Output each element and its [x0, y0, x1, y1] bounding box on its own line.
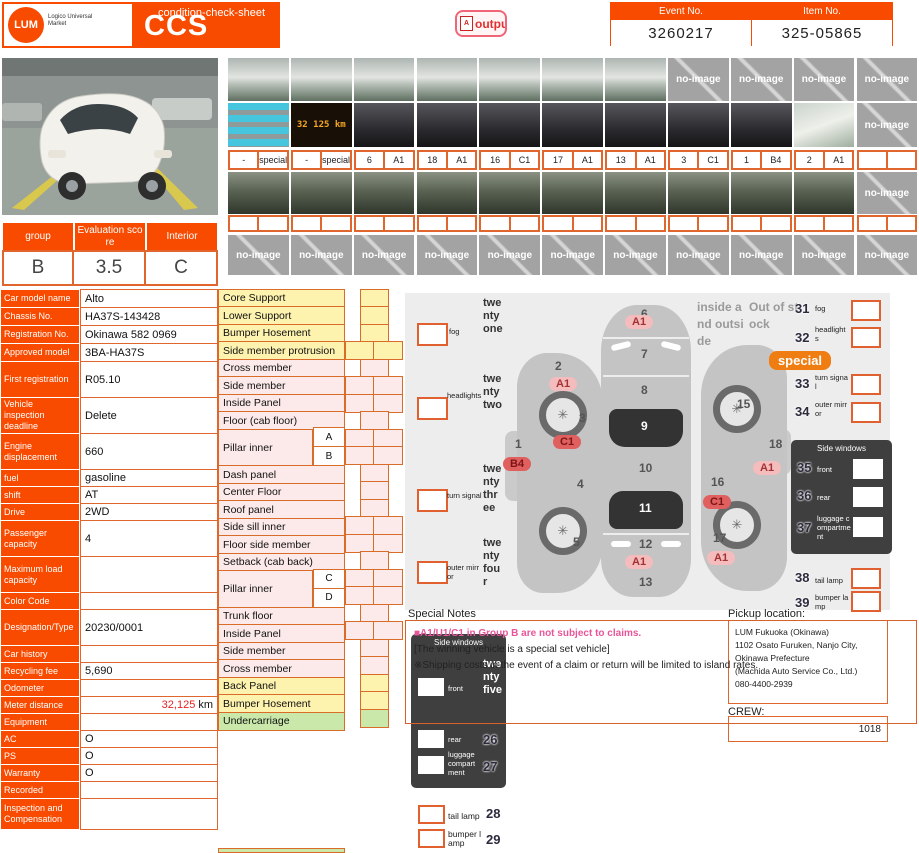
part-checkbox[interactable]	[360, 656, 389, 675]
photo-thumb[interactable]	[542, 172, 603, 214]
details-row-value: Delete	[80, 397, 218, 434]
photo-tag-pair	[479, 215, 540, 232]
parts-row: Floor side member	[218, 535, 345, 554]
part-checkbox-right[interactable]	[373, 516, 403, 535]
part-checkbox[interactable]	[360, 359, 389, 378]
panel-line	[603, 375, 689, 377]
part-checkbox[interactable]	[360, 481, 389, 500]
photo-tag-cell	[762, 215, 791, 232]
part-checkbox[interactable]	[360, 674, 389, 693]
photo-thumb[interactable]	[417, 58, 478, 101]
no-image-placeholder: no-image	[291, 235, 352, 275]
part-checkbox-right[interactable]	[373, 429, 403, 448]
photo-tag-pair: 1B4	[731, 150, 792, 170]
part-checkbox-right[interactable]	[373, 446, 403, 465]
parts-row: Side member	[218, 642, 345, 661]
parts-row: Side member protrusion	[218, 341, 345, 360]
luggage-window-label: luggage compartment	[817, 514, 851, 541]
headlights-label-right: headlights	[815, 325, 849, 343]
photo-tag-cell	[322, 215, 351, 232]
photo-tag-pair: 2A1	[794, 150, 855, 170]
photo-tag-cell	[857, 215, 888, 232]
details-row: Inspection and Compensation	[0, 798, 218, 830]
parts-sub-cell: D	[313, 588, 345, 609]
strip-row	[345, 306, 405, 325]
part-checkbox-left[interactable]	[345, 621, 375, 640]
parts-sub-cell: C	[313, 569, 345, 590]
details-row-value: 32,125km	[80, 696, 218, 714]
photo-tag-cell: A1	[637, 150, 666, 170]
part-checkbox[interactable]	[360, 691, 389, 710]
part-checkbox[interactable]	[360, 289, 389, 308]
details-row: Meter distance32,125km	[0, 696, 218, 714]
details-row-value: 660	[80, 433, 218, 470]
item-31-number: 31	[795, 301, 809, 316]
photo-thumb[interactable]	[228, 172, 289, 214]
zone-5: 5	[573, 535, 580, 549]
strip-row	[345, 394, 405, 413]
parts-row: Cross member	[218, 359, 345, 378]
item-35-number: 35	[797, 460, 811, 475]
details-row-value: HA37S-143428	[80, 307, 218, 326]
part-checkbox[interactable]	[360, 709, 389, 728]
damage-badge-a1: A1	[549, 377, 577, 391]
part-checkbox-left[interactable]	[345, 586, 375, 605]
bumper-lamp-checkbox-right[interactable]	[851, 591, 881, 612]
parts-row: Core Support	[218, 289, 345, 308]
details-row-value	[80, 592, 218, 610]
photo-tag-cell: C1	[511, 150, 540, 170]
item-27-number: 27	[483, 759, 497, 774]
details-row-value: 4	[80, 520, 218, 557]
photo-thumb[interactable]	[228, 103, 289, 147]
details-row: Car model nameAlto	[0, 289, 218, 308]
tail-lamp-label-left: tail lamp	[448, 812, 488, 821]
no-image-placeholder: no-image	[417, 235, 478, 275]
part-checkbox-left[interactable]	[345, 516, 375, 535]
parts-row: Side sill inner	[218, 518, 345, 537]
details-row-label: Recycling fee	[0, 662, 80, 680]
photo-tag-cell	[385, 215, 414, 232]
details-row-label: Chassis No.	[0, 307, 80, 326]
panel-line	[603, 337, 689, 339]
details-row: WarrantyO	[0, 764, 218, 782]
headlights-checkbox-right[interactable]	[851, 327, 881, 348]
luggage-window-checkbox-left[interactable]	[418, 756, 444, 774]
part-checkbox[interactable]	[360, 306, 389, 325]
strip-row	[345, 656, 405, 675]
details-row: Equipment	[0, 713, 218, 731]
photo-tag-cell: -	[291, 150, 322, 170]
photo-tag-cell: 18	[417, 150, 448, 170]
photo-tag-pair	[857, 150, 918, 170]
photo-tag-pair	[542, 215, 603, 232]
strip-row	[345, 429, 405, 448]
details-row-label: Car model name	[0, 289, 80, 308]
parts-row: Bumper Hosement	[218, 694, 345, 713]
no-image-placeholder: no-image	[228, 235, 289, 275]
part-checkbox-left[interactable]	[345, 569, 375, 588]
main-photo-image	[2, 58, 218, 215]
damage-badge-b4: B4	[503, 457, 531, 471]
photo-thumb[interactable]	[417, 172, 478, 214]
rear-window-checkbox-left[interactable]	[418, 730, 444, 748]
photo-thumb[interactable]	[542, 103, 603, 147]
photo-tag-cell	[605, 215, 636, 232]
damage-badge-a1: A1	[707, 551, 735, 565]
zone-2: 2	[555, 359, 562, 373]
photo-tag-cell: A1	[385, 150, 414, 170]
details-row: ACO	[0, 730, 218, 748]
parts-row: Trunk floor	[218, 607, 345, 626]
event-no-value: 3260217	[611, 20, 751, 46]
part-checkbox-left[interactable]	[345, 446, 375, 465]
details-row-value	[80, 556, 218, 593]
photo-thumb[interactable]: 32 125 km	[291, 103, 352, 147]
fog-checkbox-right[interactable]	[851, 300, 881, 321]
taillight-left	[611, 541, 631, 547]
photo-tag-pair	[731, 215, 792, 232]
side-windows-title: Side windows	[791, 444, 892, 453]
photo-tag-cell	[857, 150, 888, 170]
photo-tag-pair	[794, 215, 855, 232]
photo-thumb[interactable]	[605, 172, 666, 214]
part-checkbox-left[interactable]	[345, 394, 375, 413]
photo-thumb[interactable]	[668, 103, 729, 147]
photo-tag-cell: B4	[762, 150, 791, 170]
parts-sub-cells: CD	[313, 570, 345, 608]
photo-tag-cell: 13	[605, 150, 636, 170]
photo-tag-cell	[731, 215, 762, 232]
fog-label-right: fog	[815, 304, 849, 313]
photo-thumb[interactable]	[479, 172, 540, 214]
photo-tag-cell: 3	[668, 150, 699, 170]
photo-thumb[interactable]	[479, 103, 540, 147]
photo-thumb[interactable]	[417, 103, 478, 147]
parts-row-label: Lower Support	[218, 306, 345, 325]
item-no-value: 325-05865	[752, 20, 892, 46]
details-row-value: 20230/0001	[80, 609, 218, 646]
photo-tag-cell: 16	[479, 150, 510, 170]
parts-list: Core SupportLower SupportBumper Hosement…	[218, 290, 345, 731]
strip-row	[345, 621, 405, 640]
no-image-placeholder: no-image	[668, 235, 729, 275]
photo-tag-cell	[291, 215, 322, 232]
strip-row	[345, 341, 405, 360]
parts-row: Center Floor	[218, 483, 345, 502]
part-checkbox-right[interactable]	[373, 586, 403, 605]
summary-table: group Evaluation score Interior B 3.5 C	[2, 222, 218, 287]
zone-17: 17	[713, 531, 726, 545]
photo-tag-pair	[668, 215, 729, 232]
photo-tag-cell	[259, 215, 288, 232]
part-checkbox-left[interactable]	[345, 534, 375, 553]
details-row: Drive2WD	[0, 503, 218, 521]
lum-logo-icon: LUM	[8, 7, 44, 43]
turn-signal-checkbox-left[interactable]	[417, 489, 448, 512]
rear-window-checkbox[interactable]	[853, 487, 883, 507]
luggage-window-checkbox[interactable]	[853, 517, 883, 537]
details-row-value: 5,690	[80, 662, 218, 680]
details-row: Color Code	[0, 592, 218, 610]
tail-lamp-label-right: tail lamp	[815, 576, 855, 585]
tail-lamp-checkbox-left[interactable]	[418, 805, 445, 824]
note-line-2: [The winning vehicle is a special set ve…	[414, 642, 908, 658]
part-checkbox-left[interactable]	[345, 376, 375, 395]
item-no-label: Item No.	[752, 3, 892, 19]
part-checkbox-right[interactable]	[373, 394, 403, 413]
strip-row	[345, 499, 405, 518]
zone-18: 18	[769, 437, 782, 451]
parts-row-label: Inside Panel	[218, 394, 345, 413]
photo-thumb[interactable]	[794, 172, 855, 214]
part-checkbox-right[interactable]	[373, 376, 403, 395]
details-row: Maximum load capacity	[0, 556, 218, 593]
details-row-label: AC	[0, 730, 80, 748]
zone-1: 1	[515, 437, 522, 451]
no-image-placeholder: no-image	[605, 235, 666, 275]
strip-row	[345, 586, 405, 605]
photo-tag-pair	[228, 215, 289, 232]
photo-thumb[interactable]	[354, 58, 415, 101]
part-checkbox[interactable]	[360, 604, 389, 623]
details-row-value: Okinawa 582 0969	[80, 325, 218, 344]
panel-line	[603, 533, 689, 535]
part-checkbox-right[interactable]	[373, 569, 403, 588]
photo-thumb[interactable]	[291, 172, 352, 214]
output-button-label: output	[475, 17, 507, 31]
parts-row: Inside Panel	[218, 394, 345, 413]
details-row: First registrationR05.10	[0, 361, 218, 398]
strip-row	[345, 674, 405, 693]
outer-mirror-label-left: outer mirror	[447, 563, 483, 581]
photo-tag-pair: 17A1	[542, 150, 603, 170]
photo-thumb[interactable]	[479, 58, 540, 101]
part-checkbox[interactable]	[360, 639, 389, 658]
part-checkbox[interactable]	[360, 324, 389, 343]
part-checkbox-right[interactable]	[373, 621, 403, 640]
photo-tag-pair: 13A1	[605, 150, 666, 170]
details-row-label: Odometer	[0, 679, 80, 697]
item-29-number: 29	[486, 832, 500, 847]
strip-row	[345, 639, 405, 658]
photo-tag-pair	[291, 215, 352, 232]
photo-tag-cell	[354, 215, 385, 232]
details-row-label: Equipment	[0, 713, 80, 731]
photo-tag-cell	[542, 215, 573, 232]
photo-tag-cell: 17	[542, 150, 573, 170]
photo-tag-cell	[888, 215, 917, 232]
photo-thumb[interactable]	[228, 58, 289, 101]
details-row-value: AT	[80, 486, 218, 504]
parts-row: Lower Support	[218, 306, 345, 325]
photo-thumb[interactable]	[605, 103, 666, 147]
item-21-number: twentyone	[483, 297, 503, 336]
part-checkbox-right[interactable]	[373, 341, 403, 360]
out-of-stock-label: Out of stock	[749, 299, 801, 333]
strip-row	[345, 709, 405, 728]
no-image-placeholder: no-image	[542, 235, 603, 275]
no-image-placeholder: no-image	[794, 58, 855, 101]
photo-thumb[interactable]	[354, 103, 415, 147]
item-26-number: 26	[483, 732, 497, 747]
group-value: B	[2, 250, 74, 286]
photo-tag-pair	[857, 215, 918, 232]
ccs-sheet: LUM Logico Universal Market CCS conditio…	[0, 0, 919, 853]
parts-row: Side member	[218, 376, 345, 395]
bumper-lamp-checkbox-left[interactable]	[418, 829, 445, 848]
fog-checkbox-left[interactable]	[417, 323, 448, 346]
photo-thumb[interactable]	[542, 58, 603, 101]
parts-row-label: Back Panel	[218, 677, 345, 696]
strip-row	[345, 569, 405, 588]
no-image-placeholder: no-image	[731, 235, 792, 275]
no-image-placeholder: no-image	[857, 172, 918, 214]
photo-tag-pair: 16C1	[479, 150, 540, 170]
part-checkbox[interactable]	[360, 411, 389, 430]
details-row-value: 3BA-HA37S	[80, 343, 218, 362]
zone-11: 11	[639, 501, 652, 515]
headlights-label-left: headlights	[447, 391, 483, 400]
parts-row-label: Pillar inner	[218, 429, 313, 467]
part-checkbox[interactable]	[360, 464, 389, 483]
details-row: Car history	[0, 645, 218, 663]
parts-row: Pillar innerAB	[218, 429, 345, 467]
part-checkbox[interactable]	[360, 499, 389, 518]
parts-row: Pillar innerCD	[218, 570, 345, 608]
photo-thumb[interactable]	[291, 58, 352, 101]
no-image-placeholder: no-image	[857, 58, 918, 101]
parts-row: Undercarriage	[218, 712, 345, 731]
front-window-checkbox[interactable]	[853, 459, 883, 479]
strip-row	[345, 464, 405, 483]
zone-12: 12	[639, 537, 652, 551]
photo-thumb[interactable]	[794, 103, 855, 147]
parts-row-label: Bumper Hosement	[218, 694, 345, 713]
photo-tag-cell	[479, 215, 510, 232]
meter-distance-value: 32,125	[162, 699, 196, 711]
inside-outside-label: inside and outside	[697, 299, 747, 350]
event-item-table: Event No. Item No. 3260217 325-05865	[610, 2, 893, 46]
details-row-value	[80, 679, 218, 697]
photo-thumb[interactable]	[354, 172, 415, 214]
strip-row	[345, 376, 405, 395]
outer-mirror-checkbox-right[interactable]	[851, 402, 881, 423]
photo-tag-pair	[417, 215, 478, 232]
parts-sub-cell: B	[313, 446, 345, 467]
details-row-label: Recorded	[0, 781, 80, 799]
details-row-label: Drive	[0, 503, 80, 521]
strip-row	[345, 411, 405, 430]
no-image-placeholder: no-image	[668, 58, 729, 101]
header-bar: LUM Logico Universal Market CCS conditio…	[2, 2, 280, 48]
output-button[interactable]: A output	[455, 10, 507, 37]
no-image-placeholder: no-image	[857, 103, 918, 147]
details-row-value: Alto	[80, 289, 218, 308]
cutoff-row	[218, 848, 345, 853]
item-32-number: 32	[795, 330, 809, 345]
side-windows-panel-right: Side windows 35 front 36 rear 37 luggage…	[791, 440, 892, 554]
turn-signal-label-right: turn signal	[815, 373, 849, 391]
details-row-label: PS	[0, 747, 80, 765]
part-checkbox-left[interactable]	[345, 429, 375, 448]
strip-row	[345, 551, 405, 570]
details-row-value: O	[80, 764, 218, 782]
parts-row-label: Center Floor	[218, 483, 345, 502]
part-checkbox-right[interactable]	[373, 534, 403, 553]
photo-tag-cell	[637, 215, 666, 232]
zone-7: 7	[641, 347, 648, 361]
part-checkbox-left[interactable]	[345, 341, 375, 360]
no-image-placeholder: no-image	[354, 235, 415, 275]
parts-row-label: Core Support	[218, 289, 345, 308]
item-36-number: 36	[797, 488, 811, 503]
strip-row	[345, 534, 405, 553]
zone-13: 13	[639, 575, 652, 589]
parts-row-label: Side member	[218, 376, 345, 395]
parts-row-label: Cross member	[218, 359, 345, 378]
photo-thumb[interactable]	[668, 172, 729, 214]
photo-tag-cell: 6	[354, 150, 385, 170]
details-row-label: Warranty	[0, 764, 80, 782]
turn-signal-checkbox-right[interactable]	[851, 374, 881, 395]
strip-row	[345, 481, 405, 500]
details-row: Odometer	[0, 679, 218, 697]
tail-lamp-checkbox-right[interactable]	[851, 568, 881, 589]
main-photo[interactable]	[2, 58, 218, 215]
parts-row-label: Undercarriage	[218, 712, 345, 731]
photo-tag-pair	[605, 215, 666, 232]
parts-row-label: Trunk floor	[218, 607, 345, 626]
part-checkbox[interactable]	[360, 551, 389, 570]
zone-16: 16	[711, 475, 724, 489]
parts-row-label: Side member	[218, 642, 345, 661]
details-row-label: Approved model	[0, 343, 80, 362]
photo-thumb[interactable]	[731, 103, 792, 147]
outer-mirror-checkbox-left[interactable]	[417, 561, 448, 584]
photo-tag-cell	[511, 215, 540, 232]
details-row: Vehicle inspection deadlineDelete	[0, 397, 218, 434]
damage-badge-c1: C1	[703, 495, 731, 509]
item-34-number: 34	[795, 404, 809, 419]
zone-3: 3	[579, 411, 586, 425]
photo-tag-cell: -	[228, 150, 259, 170]
damage-badge-c1: C1	[553, 435, 581, 449]
photo-thumb[interactable]	[605, 58, 666, 101]
details-row: shiftAT	[0, 486, 218, 504]
details-row-value	[80, 645, 218, 663]
pickup-location-title: Pickup location:	[728, 608, 805, 620]
details-row-label: Color Code	[0, 592, 80, 610]
rear-window-label-left: rear	[448, 735, 480, 744]
special-notes-title: Special Notes	[408, 608, 476, 620]
details-row: Recycling fee5,690	[0, 662, 218, 680]
headlights-checkbox-left[interactable]	[417, 397, 448, 420]
photo-thumb[interactable]	[731, 172, 792, 214]
parts-row-label: Pillar inner	[218, 570, 313, 608]
parts-row-label: Floor side member	[218, 535, 345, 554]
photo-tag-cell	[794, 215, 825, 232]
photo-tag-cell	[574, 215, 603, 232]
photo-tag-cell: C1	[699, 150, 728, 170]
meter-distance-unit: km	[198, 699, 213, 711]
rear-window-label: rear	[817, 493, 851, 502]
front-window-label: front	[817, 465, 851, 474]
photo-tag-cell	[417, 215, 448, 232]
photo-tag-cell	[668, 215, 699, 232]
lum-logo: LUM Logico Universal Market	[4, 4, 132, 46]
details-row-value: 2WD	[80, 503, 218, 521]
